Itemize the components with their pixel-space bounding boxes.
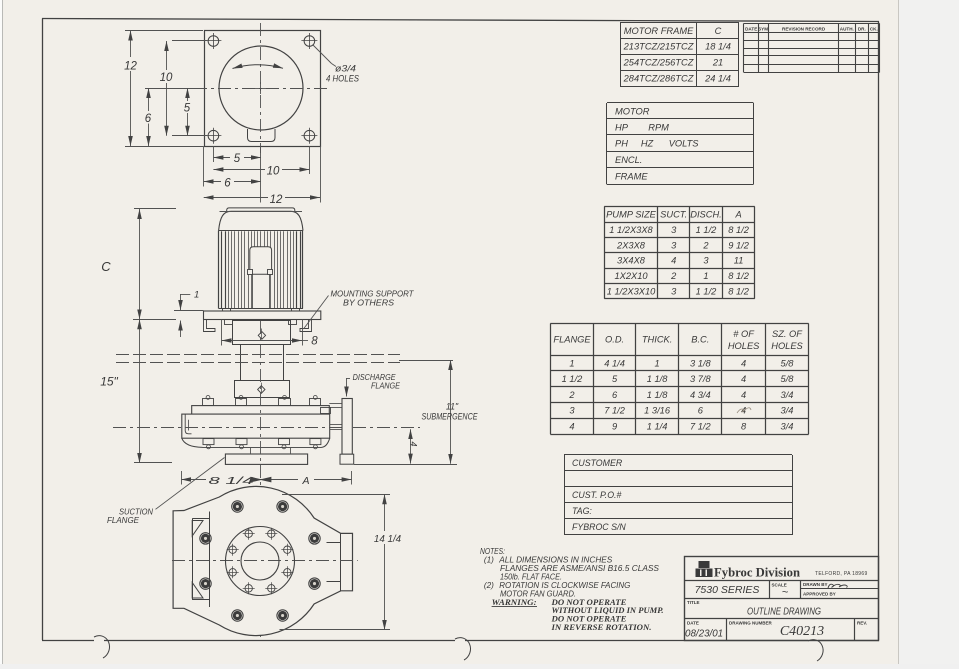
svg-text:1 1/2: 1 1/2 [696,286,718,296]
svg-text:(2): (2) [484,581,494,590]
svg-text:1: 1 [655,358,660,368]
svg-text:12: 12 [270,194,283,206]
svg-text:C: C [101,259,111,274]
svg-text:DATE: DATE [745,26,757,31]
svg-text:1 1/4: 1 1/4 [647,422,668,432]
svg-text:O.D.: O.D. [605,335,624,345]
svg-text:7530 SERIES: 7530 SERIES [695,584,760,596]
svg-text:21: 21 [712,57,723,67]
svg-text:A: A [734,210,741,220]
svg-text:2: 2 [670,271,677,281]
svg-text:HOLES: HOLES [771,341,803,351]
svg-text:THICK.: THICK. [642,335,672,345]
svg-text:DRAWING NUMBER: DRAWING NUMBER [729,621,772,626]
svg-text:DR.: DR. [858,26,866,31]
svg-text:8 1/2: 8 1/2 [728,225,750,235]
svg-text:11: 11 [734,256,744,266]
svg-text:5/8: 5/8 [781,358,795,368]
svg-text:PUMP SIZE: PUMP SIZE [606,210,657,220]
svg-text:HP RPM: HP RPM [615,122,669,132]
svg-text:3/4: 3/4 [781,390,794,400]
svg-text:IN REVERSE ROTATION.: IN REVERSE ROTATION. [550,623,651,632]
svg-text:SYM.: SYM. [758,26,769,31]
svg-text:254TCZ/256TCZ: 254TCZ/256TCZ [623,57,694,67]
svg-text:WARNING:: WARNING: [492,598,537,607]
svg-text:1 1/2: 1 1/2 [562,374,584,384]
svg-text:Fybroc Division: Fybroc Division [714,565,800,579]
svg-text:8: 8 [311,336,318,348]
svg-text:2X3X8: 2X3X8 [616,240,646,250]
svg-text:4 3/4: 4 3/4 [690,390,711,400]
svg-text:FLANGE: FLANGE [553,335,591,345]
svg-text:6: 6 [698,406,704,416]
svg-text:9: 9 [612,422,617,432]
svg-text:3X4X8: 3X4X8 [617,256,646,266]
svg-text:2: 2 [702,240,709,250]
svg-text:4: 4 [671,256,676,266]
svg-text:3 1/8: 3 1/8 [690,358,712,368]
svg-text:7 1/2: 7 1/2 [604,406,626,416]
svg-text:1 1/2X3X8: 1 1/2X3X8 [609,225,653,235]
svg-text:FLANGE: FLANGE [107,515,139,525]
svg-text:4 HOLES: 4 HOLES [326,74,360,84]
svg-text:DRAWN BY: DRAWN BY [803,582,828,587]
svg-text:1: 1 [569,358,574,368]
svg-text:CK.: CK. [870,26,878,31]
svg-text:ø3/4: ø3/4 [335,64,356,74]
svg-text:BY OTHERS: BY OTHERS [343,298,394,308]
svg-text:15": 15" [100,375,118,389]
svg-text:4: 4 [409,441,419,446]
svg-text:REV.: REV. [857,621,867,626]
svg-text:1: 1 [194,290,199,301]
svg-text:5/8: 5/8 [781,374,795,384]
svg-text:8: 8 [741,422,747,432]
svg-text:TELFORD, PA 18969: TELFORD, PA 18969 [815,571,868,577]
svg-text:(1): (1) [484,555,494,564]
svg-text:# OF: # OF [733,329,755,339]
svg-text:MOTOR FRAME: MOTOR FRAME [624,26,694,36]
svg-text:HOLES: HOLES [728,341,760,351]
svg-text:ENCL.: ENCL. [615,155,642,165]
svg-text:1 1/8: 1 1/8 [647,374,669,384]
svg-text:08/23/01: 08/23/01 [685,629,723,640]
svg-text:MOTOR: MOTOR [615,106,650,116]
svg-text:3 7/8: 3 7/8 [690,374,712,384]
svg-text:1 1/2: 1 1/2 [696,225,718,235]
svg-text:8 1/2: 8 1/2 [728,271,750,281]
svg-text:SUCT.: SUCT. [660,210,687,220]
svg-text:3: 3 [671,225,677,235]
svg-text:5: 5 [184,103,191,115]
svg-text:DATE: DATE [687,621,699,626]
svg-text:4: 4 [569,422,574,432]
svg-text:284TCZ/286TCZ: 284TCZ/286TCZ [623,73,694,83]
svg-text:3: 3 [569,406,575,416]
svg-text:A: A [301,475,309,487]
svg-text:14 1/4: 14 1/4 [374,534,402,545]
svg-text:4 1/4: 4 1/4 [604,358,625,368]
svg-text:8 1/2: 8 1/2 [728,286,750,296]
svg-text:1 1/8: 1 1/8 [647,390,669,400]
svg-text:6: 6 [145,113,152,125]
svg-text:OUTLINE DRAWING: OUTLINE DRAWING [747,607,821,618]
svg-text:4: 4 [741,374,746,384]
svg-text:6: 6 [224,178,231,190]
svg-text:REVISION RECORD: REVISION RECORD [782,26,826,31]
svg-text:3/4: 3/4 [781,422,794,432]
svg-text:4: 4 [741,358,746,368]
svg-text:B.C.: B.C. [691,335,709,345]
svg-text:TAG:: TAG: [572,506,592,516]
svg-text:CUSTOMER: CUSTOMER [572,458,623,468]
svg-text:1: 1 [703,271,708,281]
svg-text:12: 12 [124,61,137,73]
svg-text:SUBMERGENCE: SUBMERGENCE [422,412,478,422]
svg-text:8 1/4: 8 1/4 [209,475,254,487]
svg-text:213TCZ/215TCZ: 213TCZ/215TCZ [623,42,694,52]
svg-text:6: 6 [612,390,618,400]
svg-text:10: 10 [160,72,173,84]
svg-text:3: 3 [671,240,677,250]
svg-text:AUTH.: AUTH. [840,26,854,31]
svg-text:3: 3 [703,256,709,266]
svg-text:1X2X10: 1X2X10 [614,271,648,281]
svg-text:APPROVED BY: APPROVED BY [803,592,836,597]
svg-text:9 1/2: 9 1/2 [728,240,750,250]
svg-text:FLANGE: FLANGE [371,381,400,391]
svg-text:3: 3 [671,286,677,296]
svg-text:TITLE: TITLE [687,600,700,605]
svg-text:SZ. OF: SZ. OF [772,329,803,339]
svg-text:CUST. P.O.#: CUST. P.O.# [572,490,621,500]
svg-text:1 1/2X3X10: 1 1/2X3X10 [607,286,656,296]
svg-text:DISCH.: DISCH. [690,210,722,220]
svg-text:3/4: 3/4 [781,406,794,416]
svg-text:1 3/16: 1 3/16 [644,406,671,416]
svg-text:FYBROC S/N: FYBROC S/N [572,522,626,532]
svg-text:5: 5 [234,153,241,165]
svg-text:10: 10 [267,165,280,177]
svg-text:~: ~ [782,587,789,599]
svg-text:5: 5 [612,374,618,384]
svg-text:FRAME: FRAME [615,171,648,181]
svg-text:24 1/4: 24 1/4 [704,73,731,83]
svg-text:PH HZ VOLTS: PH HZ VOLTS [615,139,699,149]
svg-text:11": 11" [446,402,459,412]
svg-text:4: 4 [741,390,746,400]
svg-text:C: C [715,26,722,36]
svg-text:C40213: C40213 [780,624,824,639]
svg-text:18 1/4: 18 1/4 [705,42,731,52]
svg-text:2: 2 [568,390,575,400]
svg-text:7 1/2: 7 1/2 [690,422,712,432]
